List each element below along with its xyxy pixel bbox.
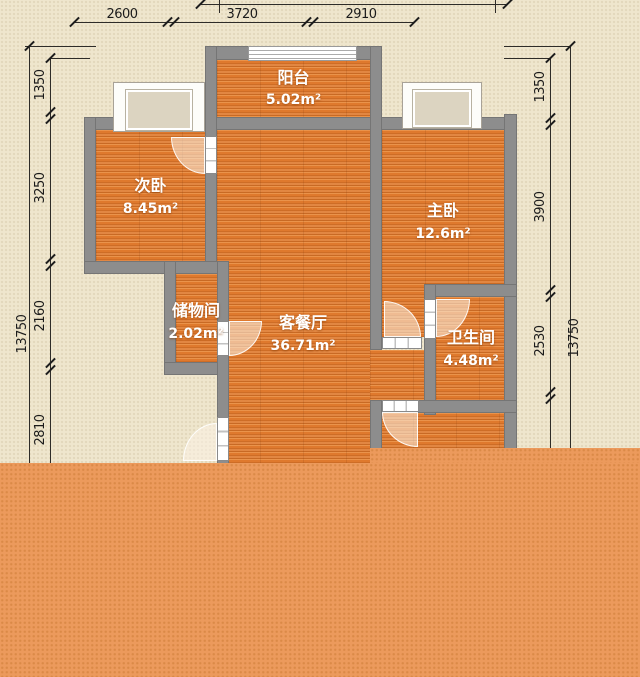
wall-left-outer — [84, 117, 96, 274]
orange-overlay-bottom — [0, 463, 640, 677]
dim-stub — [25, 46, 96, 47]
entrance-door-arc — [183, 423, 217, 461]
bedroom2-door — [205, 136, 217, 174]
dim-label-left-2: 2160 — [34, 286, 48, 346]
living-dining-floor — [217, 130, 370, 465]
entrance-door — [217, 417, 229, 461]
room-label-second-bedroom: 次卧 — [96, 177, 205, 195]
master-bay-window-glass — [413, 90, 471, 127]
room-area-bathroom: 4.48m² — [412, 353, 530, 369]
dim-label-right-2: 2530 — [534, 311, 548, 371]
bedroom2-bay-window-glass — [126, 90, 192, 130]
room-area-master-bedroom: 12.6m² — [382, 226, 504, 242]
balcony-window — [248, 46, 357, 61]
room-area-balcony: 5.02m² — [217, 92, 370, 108]
dim-label-top-total: 10130 — [305, 0, 385, 4]
room-label-bathroom: 卫生间 — [412, 329, 530, 347]
room-area-second-bedroom: 8.45m² — [96, 201, 205, 217]
dim-label-left-1: 3250 — [34, 158, 48, 218]
dim-label-right-total: 13750 — [568, 303, 582, 373]
room-label-balcony: 阳台 — [217, 69, 370, 87]
room-label-storage: 储物间 — [146, 302, 246, 320]
dim-label-top-1: 3720 — [207, 8, 277, 22]
dim-label-right-1: 3900 — [534, 177, 548, 237]
dim-line-top-total — [200, 4, 507, 5]
dim-label-left-3: 2810 — [34, 400, 48, 460]
dim-label-right-0: 1350 — [534, 57, 548, 117]
room-label-living-dining: 客餐厅 — [243, 314, 363, 332]
wall-divider-right — [370, 46, 382, 350]
room-area-storage: 2.02m² — [146, 326, 246, 342]
wall-bedroom2-bottom — [84, 261, 229, 274]
room-label-master-bedroom: 主卧 — [382, 202, 504, 220]
dim-tick — [502, 0, 513, 9]
dim-label-top-2: 2910 — [326, 8, 396, 22]
dim-label-left-0: 1350 — [34, 55, 48, 115]
dim-label-left-total: 13750 — [16, 299, 30, 369]
dim-stub — [504, 46, 570, 47]
dim-line-right-total — [570, 46, 571, 448]
dim-stub — [50, 58, 90, 59]
dim-label-top-0: 2600 — [87, 8, 157, 22]
dim-line-left-total — [29, 46, 30, 465]
lower-door — [382, 400, 419, 412]
dim-stub — [495, 0, 496, 13]
dim-line-top-segments — [74, 22, 414, 23]
wall-bathroom-top — [424, 284, 517, 297]
floorplan-canvas: 阳台 5.02m² 次卧 8.45m² 主卧 12.6m² 储物间 2.02m²… — [0, 0, 640, 677]
room-area-living-dining: 36.71m² — [243, 338, 363, 354]
